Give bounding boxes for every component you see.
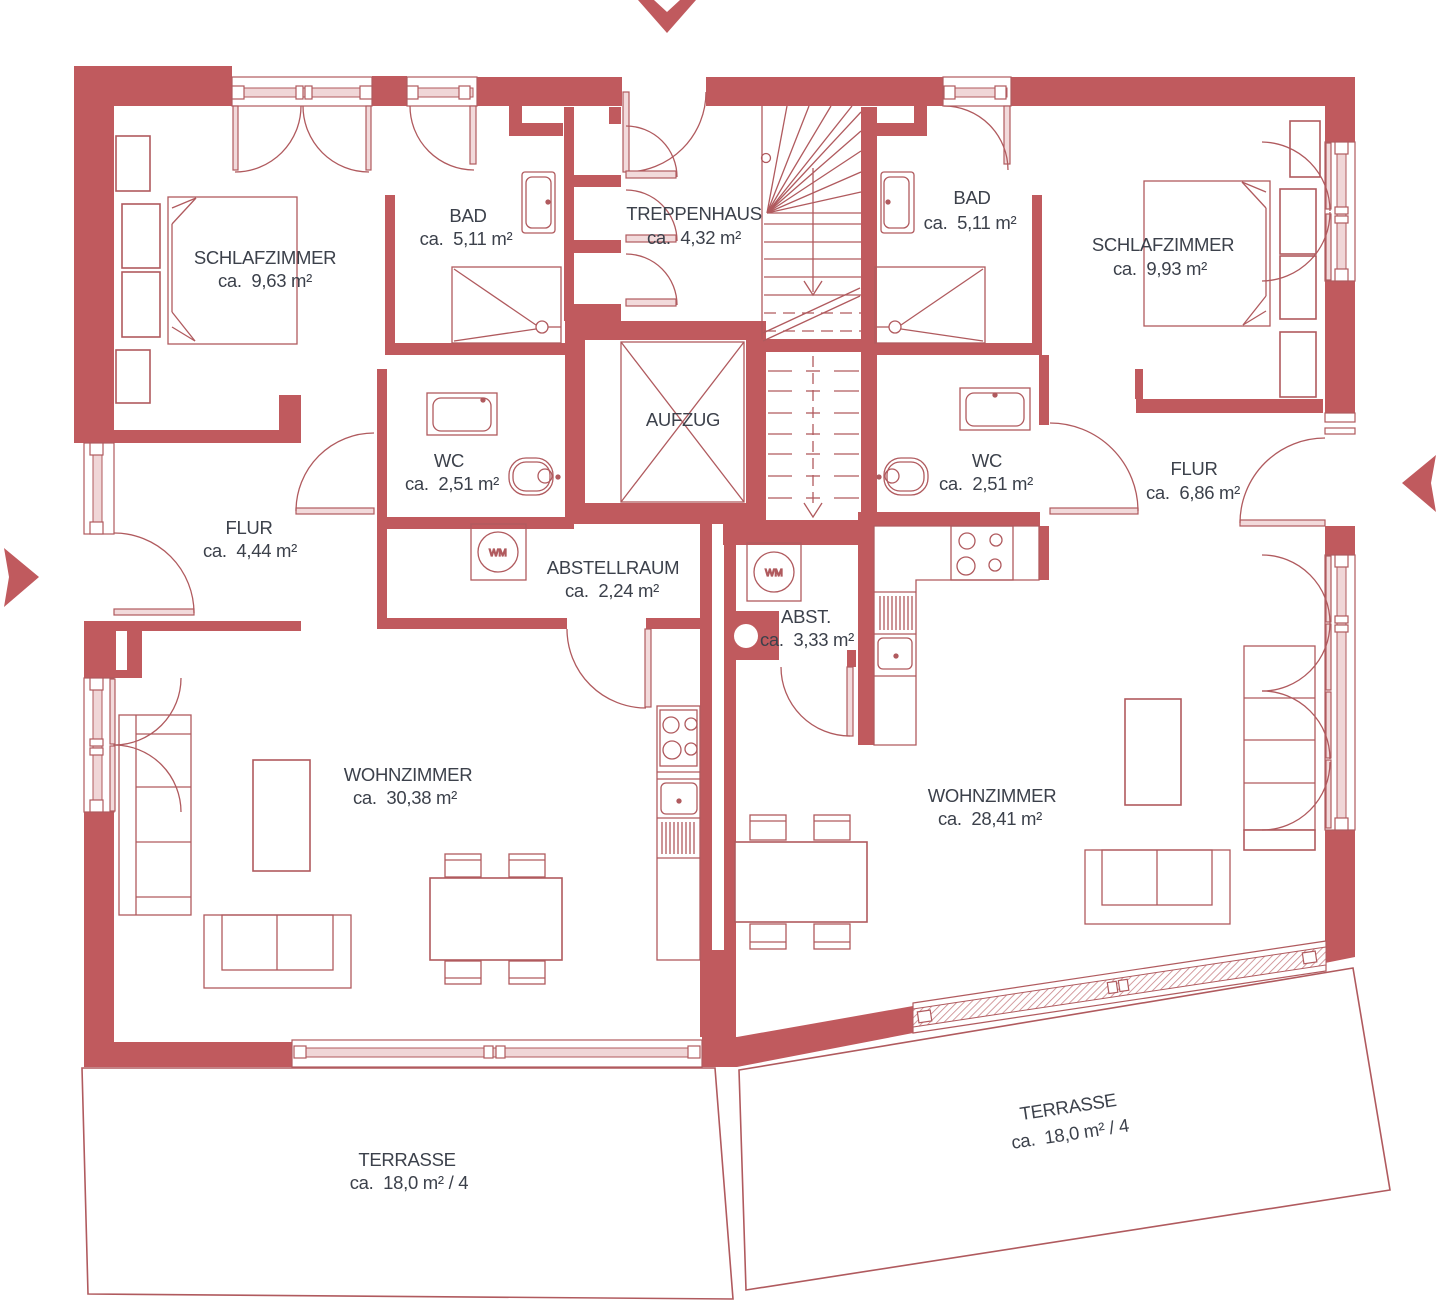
svg-text:ca. 9,93 m²: ca. 9,93 m² xyxy=(1113,258,1207,279)
svg-text:ca. 4,44 m²: ca. 4,44 m² xyxy=(203,540,297,561)
svg-text:FLUR: FLUR xyxy=(1170,458,1217,479)
svg-text:ca. 4,32 m²: ca. 4,32 m² xyxy=(647,227,741,248)
svg-text:ca. 28,41 m²: ca. 28,41 m² xyxy=(938,808,1042,829)
svg-text:ca. 3,33 m²: ca. 3,33 m² xyxy=(760,629,854,650)
svg-text:ABSTELLRAUM: ABSTELLRAUM xyxy=(547,557,679,578)
svg-text:ca. 2,24 m²: ca. 2,24 m² xyxy=(565,580,659,601)
svg-text:WOHNZIMMER: WOHNZIMMER xyxy=(344,764,473,785)
svg-text:SCHLAFZIMMER: SCHLAFZIMMER xyxy=(1092,234,1234,255)
svg-text:WC: WC xyxy=(972,450,1002,471)
svg-text:ca. 6,86 m²: ca. 6,86 m² xyxy=(1146,482,1240,503)
svg-text:ca. 30,38 m²: ca. 30,38 m² xyxy=(353,787,457,808)
svg-text:BAD: BAD xyxy=(953,187,990,208)
svg-text:ABST.: ABST. xyxy=(781,606,831,627)
svg-text:FLUR: FLUR xyxy=(225,517,272,538)
svg-text:ca. 5,11 m²: ca. 5,11 m² xyxy=(924,212,1017,233)
svg-text:AUFZUG: AUFZUG xyxy=(646,409,720,430)
svg-text:ca. 18,0 m² / 4: ca. 18,0 m² / 4 xyxy=(350,1172,469,1193)
svg-text:WM: WM xyxy=(489,548,507,559)
svg-text:TERRASSE: TERRASSE xyxy=(358,1149,455,1170)
svg-text:ca. 9,63 m²: ca. 9,63 m² xyxy=(218,270,312,291)
svg-text:SCHLAFZIMMER: SCHLAFZIMMER xyxy=(194,247,336,268)
svg-text:BAD: BAD xyxy=(449,205,486,226)
svg-text:ca. 2,51 m²: ca. 2,51 m² xyxy=(939,473,1033,494)
svg-text:TREPPENHAUS: TREPPENHAUS xyxy=(626,203,761,224)
svg-text:ca. 5,11 m²: ca. 5,11 m² xyxy=(420,228,513,249)
svg-text:ca. 2,51 m²: ca. 2,51 m² xyxy=(405,473,499,494)
svg-text:WM: WM xyxy=(765,568,783,579)
svg-text:WC: WC xyxy=(434,450,464,471)
svg-text:WOHNZIMMER: WOHNZIMMER xyxy=(928,785,1057,806)
